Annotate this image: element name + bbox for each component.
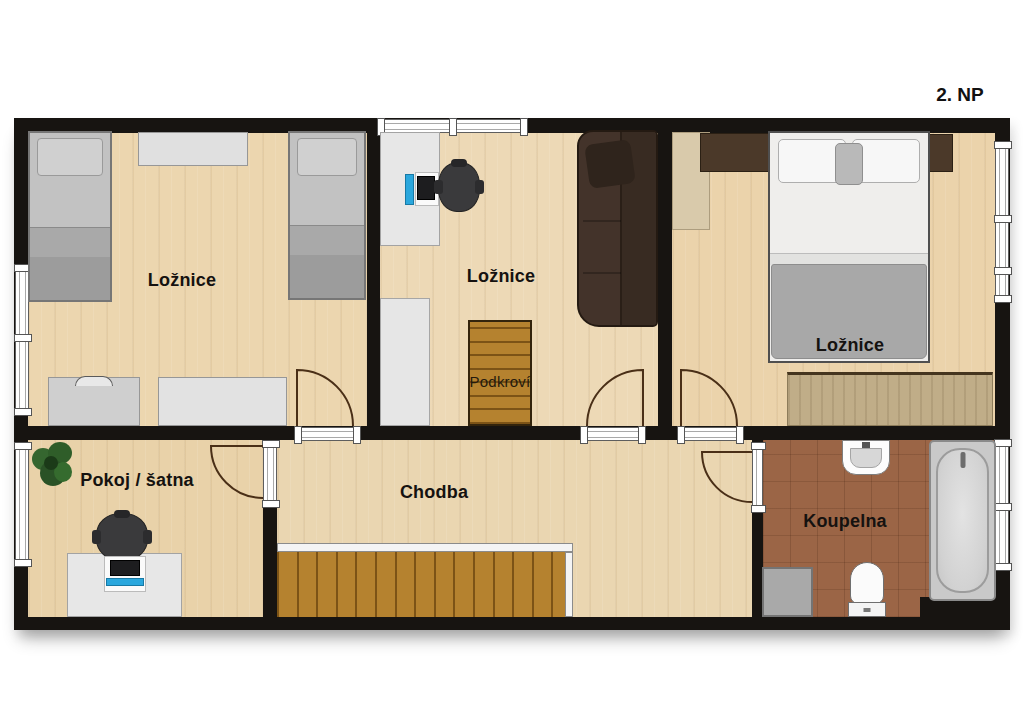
room-label-bedroom-right: Ložnice (816, 335, 884, 356)
floor-label: 2. NP (922, 84, 998, 106)
window-right-bathroom (995, 440, 1009, 570)
pillow (37, 138, 103, 176)
plant (30, 442, 74, 490)
faucet-icon (862, 442, 870, 448)
rug (787, 372, 993, 426)
wardrobe (380, 298, 430, 426)
staircase-landing (277, 543, 573, 552)
toilet-tank (848, 602, 886, 617)
sofa-pillow (584, 139, 636, 189)
toilet (850, 562, 884, 604)
door-threshold-bedroom-right (678, 427, 743, 441)
double-bed (768, 131, 930, 363)
sink (842, 440, 890, 475)
single-bed (288, 131, 366, 300)
monitor-icon (110, 560, 140, 576)
window-left-closet (15, 443, 29, 566)
computer-tower-icon (106, 578, 144, 586)
sofa (577, 130, 658, 327)
room-label-bedroom-left: Ložnice (148, 270, 216, 291)
single-bed (28, 131, 112, 302)
monitor-icon (417, 176, 435, 200)
faucet-icon (960, 452, 965, 468)
pillow (297, 138, 357, 176)
dresser (138, 132, 248, 166)
floorplan-page: { "floor_label": "2. NP", "rooms": { "be… (0, 0, 1024, 724)
room-label-attic-access: Podkroví (470, 373, 531, 390)
room-label-closet: Pokoj / šatna (80, 470, 194, 491)
door-threshold-bedroom-left (295, 427, 360, 441)
room-label-hallway: Chodba (400, 482, 468, 503)
chest-of-drawers (48, 377, 140, 426)
computer-tower-icon (405, 174, 414, 205)
washing-machine (762, 567, 813, 617)
chest-of-drawers (158, 377, 287, 426)
office-chair (438, 162, 480, 212)
window-right-bedroom (995, 142, 1009, 302)
door-threshold-bathroom (752, 443, 763, 512)
window-left-bedroom (15, 265, 29, 415)
drawer-handle-icon (75, 376, 113, 386)
nightstand (700, 133, 770, 172)
staircase-edge (565, 552, 573, 617)
accent-pillow (835, 143, 863, 185)
window-top (378, 119, 527, 133)
office-chair (96, 513, 148, 561)
floorplan: Ložnice Ložnice Ložnice Podkroví Pokoj /… (14, 118, 1010, 630)
staircase (277, 552, 565, 617)
door-threshold-closet (263, 441, 277, 507)
door-threshold-bedroom-middle (581, 427, 645, 441)
bathtub (929, 440, 996, 601)
room-label-bathroom: Koupelna (803, 511, 887, 532)
room-label-bedroom-middle: Ložnice (467, 266, 535, 287)
